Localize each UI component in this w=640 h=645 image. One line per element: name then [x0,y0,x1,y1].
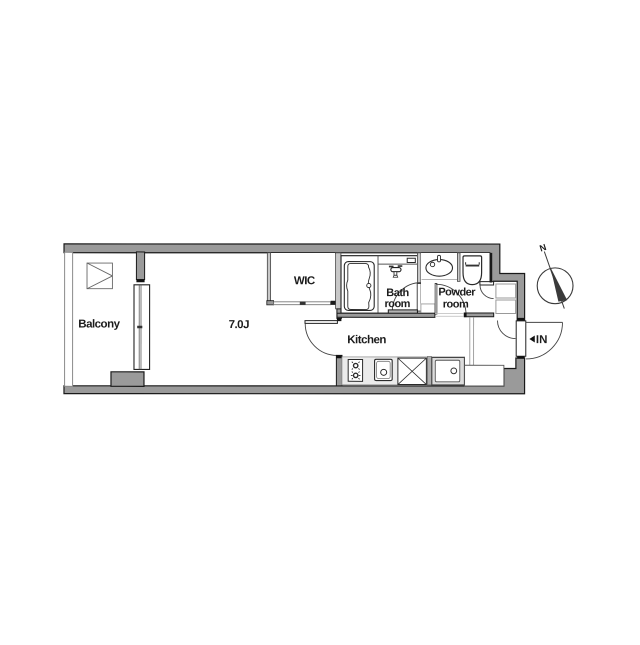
svg-text:Kitchen: Kitchen [347,334,386,346]
svg-text:7.0J: 7.0J [229,319,249,331]
svg-text:WIC: WIC [294,275,315,287]
svg-text:room: room [384,298,410,310]
svg-text:IN: IN [536,334,548,346]
svg-text:Balcony: Balcony [78,319,120,331]
svg-text:Powder: Powder [438,286,476,298]
svg-text:room: room [443,299,469,311]
